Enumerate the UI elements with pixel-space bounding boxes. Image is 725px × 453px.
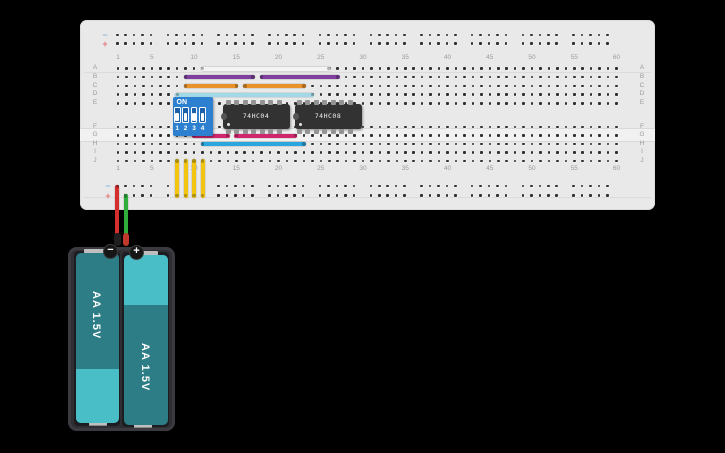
breadboard-rail-hole [243,34,246,37]
breadboard-hole [353,134,356,137]
breadboard-rail-hole [150,185,153,188]
column-number-label: 45 [482,166,498,173]
breadboard-hole [438,93,441,96]
breadboard-hole [505,143,508,146]
breadboard-hole [345,151,348,154]
breadboard-hole [505,67,508,70]
wire-end-cap [201,67,204,70]
breadboard-hole [260,151,263,154]
breadboard-hole [598,134,601,137]
breadboard-hole [556,67,559,70]
breadboard-hole [581,160,584,163]
breadboard-rail-hole [395,185,398,188]
breadboard-hole [429,143,432,146]
breadboard-hole [328,134,331,137]
battery-positive-terminal[interactable]: + [129,245,144,260]
breadboard-rail-hole [141,185,144,188]
breadboard-hole [167,134,170,137]
breadboard-rail-hole [598,185,601,188]
breadboard-rail-hole [336,42,339,45]
breadboard-hole [615,102,618,105]
breadboard-hole [125,76,128,79]
breadboard-hole [539,134,542,137]
wire-blue[interactable] [201,142,306,146]
breadboard-hole [573,160,576,163]
breadboard-hole [607,85,610,88]
breadboard-hole [142,102,145,105]
row-letter-label: F [91,124,99,131]
breadboard-hole [539,102,542,105]
breadboard-rail-hole [555,42,558,45]
breadboard-hole [320,85,323,88]
breadboard-hole [556,143,559,146]
breadboard-hole [480,93,483,96]
breadboard-hole [387,67,390,70]
breadboard-hole [379,93,382,96]
row-letter-label: G [638,132,646,139]
breadboard-hole [387,76,390,79]
breadboard-hole [404,93,407,96]
ic-pin [268,129,273,134]
breadboard-hole [489,85,492,88]
wire-green-terminal-cap [123,233,130,246]
breadboard-hole [134,85,137,88]
breadboard-hole [370,134,373,137]
breadboard-hole [159,76,162,79]
breadboard-hole [252,151,255,154]
breadboard-hole [176,76,179,79]
breadboard-rail-hole [471,42,474,45]
ic-pin [314,129,319,134]
breadboard-hole [362,102,365,105]
breadboard-hole [142,134,145,137]
ic-pin [339,129,344,134]
breadboard-rail-hole [251,34,254,37]
breadboard-hole [125,160,128,163]
wire-pink-right[interactable] [234,134,297,138]
breadboard-rail-hole [251,185,254,188]
breadboard-hole [480,76,483,79]
breadboard-hole [353,160,356,163]
breadboard-hole [455,102,458,105]
dip-switch-number: 4 [199,126,207,133]
breadboard-hole [505,134,508,137]
column-number-label: 20 [271,55,287,62]
breadboard-hole [590,151,593,154]
breadboard-hole [480,102,483,105]
breadboard-hole [607,93,610,96]
ic-pin1-dot-icon [227,123,230,126]
wire-end-cap [201,142,204,145]
breadboard-hole [167,143,170,146]
breadboard-hole [320,143,323,146]
column-number-label: 50 [524,55,540,62]
breadboard-hole [590,67,593,70]
breadboard-hole [159,134,162,137]
breadboard-hole [522,93,525,96]
breadboard-rail-hole [327,194,330,197]
breadboard-hole [429,160,432,163]
breadboard-hole [328,93,331,96]
breadboard-hole [210,160,213,163]
breadboard-rail-hole [277,185,280,188]
breadboard-rail-hole [319,185,322,188]
breadboard-hole [421,93,424,96]
breadboard-rail-hole [150,42,153,45]
breadboard-hole [446,151,449,154]
breadboard-hole [615,93,618,96]
dip-switch-on-label: ON [177,99,188,106]
breadboard-hole [336,151,339,154]
breadboard-rail-hole [606,42,609,45]
breadboard-hole [396,67,399,70]
breadboard-hole [176,143,179,146]
row-letter-label: C [638,83,646,90]
breadboard-hole [370,151,373,154]
rail-bottom-minus-marker: − [104,182,112,191]
dip-switch-handle[interactable] [192,113,196,121]
breadboard-hole [573,143,576,146]
ic-pin [260,100,265,105]
breadboard-hole [353,143,356,146]
breadboard-hole [159,67,162,70]
dip-switch[interactable]: ON 1234 [173,97,213,136]
dip-switch-handle[interactable] [184,113,188,121]
breadboard-hole [480,151,483,154]
breadboard-hole [142,67,145,70]
breadboard-hole [505,151,508,154]
breadboard-hole [320,93,323,96]
breadboard-rail-hole [522,34,525,37]
breadboard-rail-hole [175,34,178,37]
breadboard-rail-hole [344,185,347,188]
dip-switch-lever-4[interactable] [199,107,206,124]
breadboard-rail-hole [386,42,389,45]
breadboard-hole [218,102,221,105]
breadboard-hole [345,85,348,88]
breadboard-rail-hole [488,34,491,37]
breadboard-hole [320,151,323,154]
wire-yellow-4[interactable] [201,159,205,198]
breadboard-hole [573,85,576,88]
breadboard-hole [353,85,356,88]
column-number-label: 45 [482,55,498,62]
row-letter-label: I [638,149,646,156]
ic-pin [243,100,248,105]
breadboard-hole [370,160,373,163]
breadboard-hole [514,76,517,79]
breadboard-rail-hole [167,34,170,37]
breadboard-rail-hole [353,42,356,45]
breadboard-rail-hole [547,194,550,197]
wire-orange-right[interactable] [243,84,306,88]
breadboard-hole [472,134,475,137]
breadboard-hole [362,160,365,163]
wire-red[interactable] [115,185,119,240]
breadboard-hole [269,151,272,154]
breadboard-rail-hole [327,42,330,45]
breadboard-rail-hole [488,42,491,45]
wire-end-cap [243,84,246,87]
breadboard-hole [480,160,483,163]
breadboard-hole [429,102,432,105]
dip-switch-lever-1[interactable] [174,107,181,124]
wire-end-cap [184,159,187,162]
column-number-label: 60 [609,55,625,62]
ic-pin [348,129,353,134]
wire-yellow-2[interactable] [184,159,188,198]
wire-cyan[interactable] [175,93,314,97]
breadboard-hole [573,93,576,96]
breadboard-rail-hole [395,34,398,37]
breadboard-rail-hole [386,194,389,197]
breadboard-rail-hole [479,194,482,197]
dip-switch-handle[interactable] [201,113,205,121]
breadboard-rail-hole [336,194,339,197]
breadboard-hole [446,93,449,96]
column-number-label: 20 [271,166,287,173]
breadboard-hole [396,151,399,154]
breadboard-hole [497,143,500,146]
breadboard-hole [438,76,441,79]
breadboard-hole [125,143,128,146]
breadboard-rail-hole [598,34,601,37]
breadboard-hole [379,134,382,137]
breadboard-hole [227,160,230,163]
battery-cell-1[interactable]: AA 1.5V [76,253,119,423]
breadboard-hole [548,76,551,79]
wire-end-cap [311,93,314,96]
breadboard-hole [412,151,415,154]
breadboard-hole [455,85,458,88]
ic-74hc08[interactable]: 74HC08 [295,104,362,129]
breadboard-hole [421,143,424,146]
breadboard-hole [489,160,492,163]
breadboard-hole [438,67,441,70]
breadboard-rail-hole [251,194,254,197]
dip-switch-number: 2 [182,126,190,133]
breadboard-hole [590,102,593,105]
breadboard-rail-hole [141,42,144,45]
breadboard-hole [489,143,492,146]
battery-cell-label: AA 1.5V [139,343,150,391]
breadboard-rail-hole [133,42,136,45]
breadboard-hole [370,143,373,146]
breadboard-rail-hole [555,185,558,188]
battery-cell-2[interactable]: AA 1.5V [124,255,168,425]
breadboard-rail-hole [268,34,271,37]
breadboard-hole [117,151,120,154]
breadboard-hole [581,102,584,105]
breadboard-rail-hole [581,34,584,37]
breadboard-hole [404,102,407,105]
ic-pin [348,100,353,105]
breadboard-hole [396,76,399,79]
wire-orange-left[interactable] [184,84,239,88]
column-number-label: 55 [566,55,582,62]
dip-switch-lever-2[interactable] [182,107,189,124]
wire-yellow-3[interactable] [192,159,196,198]
wire-end-cap [192,194,195,197]
column-number-label: 10 [186,55,202,62]
breadboard-hole [167,67,170,70]
ic-pin [251,129,256,134]
breadboard-rail-hole [437,42,440,45]
breadboard-hole [151,151,154,154]
breadboard-hole [615,151,618,154]
ic-74hc04[interactable]: 74HC04 [223,104,290,129]
breadboard-hole [539,151,542,154]
breadboard-hole [565,134,568,137]
breadboard-hole [159,151,162,154]
breadboard-rail-hole [446,34,449,37]
breadboard-hole [446,85,449,88]
ic-label: 74HC04 [223,113,290,120]
breadboard-hole [522,160,525,163]
row-letter-label: B [91,74,99,81]
breadboard-hole [151,143,154,146]
breadboard-hole [117,102,120,105]
breadboard-rail-hole [429,194,432,197]
breadboard-divider-bottom [84,197,651,198]
breadboard-rail-hole [530,185,533,188]
column-number-label: 15 [228,55,244,62]
wire-end-cap [251,75,254,78]
breadboard-rail-hole [496,194,499,197]
breadboard-hole [134,151,137,154]
column-number-label: 30 [355,55,371,62]
ic-pin [243,129,248,134]
wire-purple-right[interactable] [260,75,340,79]
breadboard-hole [489,67,492,70]
ic-pin [277,129,282,134]
breadboard-hole [396,160,399,163]
breadboard-rail-hole [277,42,280,45]
breadboard-rail-hole [420,185,423,188]
breadboard-rail-hole [217,194,220,197]
breadboard-hole [531,160,534,163]
breadboard-rail-hole [285,34,288,37]
breadboard-hole [142,160,145,163]
breadboard-hole [514,93,517,96]
breadboard-hole [379,151,382,154]
breadboard-hole [489,134,492,137]
breadboard-hole [286,151,289,154]
breadboard-hole [472,93,475,96]
breadboard-rail-hole [201,42,204,45]
breadboard-rail-hole [344,194,347,197]
breadboard-hole [396,134,399,137]
breadboard-hole [421,151,424,154]
breadboard-rail-hole [141,34,144,37]
breadboard-hole [531,76,534,79]
breadboard-hole [539,76,542,79]
breadboard-hole [320,134,323,137]
wire-white[interactable] [201,67,332,71]
breadboard-hole [176,85,179,88]
row-letter-label: I [91,149,99,156]
breadboard-hole [565,102,568,105]
breadboard-rail-hole [446,185,449,188]
breadboard-rail-hole [606,194,609,197]
dip-switch-lever-3[interactable] [191,107,198,124]
battery-pack[interactable]: AA 1.5V AA 1.5V − + [68,247,175,431]
breadboard-hole [134,160,137,163]
wire-purple-left[interactable] [184,75,256,79]
wire-end-cap [176,93,179,96]
breadboard-hole [463,76,466,79]
ic-pin [297,100,302,105]
dip-switch-handle[interactable] [175,113,179,121]
breadboard-rail-hole [479,185,482,188]
breadboard-rail-hole [429,185,432,188]
breadboard-hole [463,143,466,146]
breadboard-rail-hole [403,185,406,188]
breadboard-hole [514,85,517,88]
breadboard-hole [235,151,238,154]
breadboard-hole [615,76,618,79]
breadboard-hole [142,151,145,154]
breadboard-rail-hole [251,42,254,45]
row-letter-label: J [638,158,646,165]
breadboard-hole [531,67,534,70]
breadboard-rail-hole [437,34,440,37]
breadboard-rail-hole [353,194,356,197]
breadboard-hole [429,67,432,70]
breadboard-hole [463,93,466,96]
breadboard-rail-hole [386,185,389,188]
breadboard-hole [151,134,154,137]
breadboard-hole [370,76,373,79]
breadboard-rail-hole [454,194,457,197]
breadboard-rail-hole [133,34,136,37]
battery-negative-terminal[interactable]: − [103,244,118,259]
breadboard-rail-hole [293,34,296,37]
breadboard-hole [429,85,432,88]
breadboard-rail-hole [336,185,339,188]
breadboard-rail-hole [336,34,339,37]
breadboard-hole [336,93,339,96]
breadboard-hole [142,85,145,88]
breadboard-hole [556,76,559,79]
breadboard-hole [598,143,601,146]
wire-end-cap [124,194,127,197]
breadboard-rail-hole [353,185,356,188]
column-number-label: 35 [397,55,413,62]
wire-yellow-1[interactable] [175,159,179,198]
breadboard-hole [463,134,466,137]
breadboard-rail-hole [386,34,389,37]
row-letter-label: D [91,91,99,98]
breadboard-hole [590,143,593,146]
breadboard-hole [412,134,415,137]
breadboard-hole [556,160,559,163]
breadboard-hole [125,67,128,70]
breadboard-hole [167,160,170,163]
breadboard[interactable]: 1155101015152020252530303535404045455050… [80,20,655,210]
breadboard-rail-hole [192,42,195,45]
breadboard-hole [573,134,576,137]
breadboard-rail-hole [167,185,170,188]
wire-end-cap [201,194,204,197]
breadboard-hole [353,76,356,79]
breadboard-rail-hole [522,185,525,188]
breadboard-rail-hole [243,185,246,188]
breadboard-hole [184,151,187,154]
breadboard-hole [556,85,559,88]
breadboard-hole [328,85,331,88]
breadboard-rail-hole [370,42,373,45]
